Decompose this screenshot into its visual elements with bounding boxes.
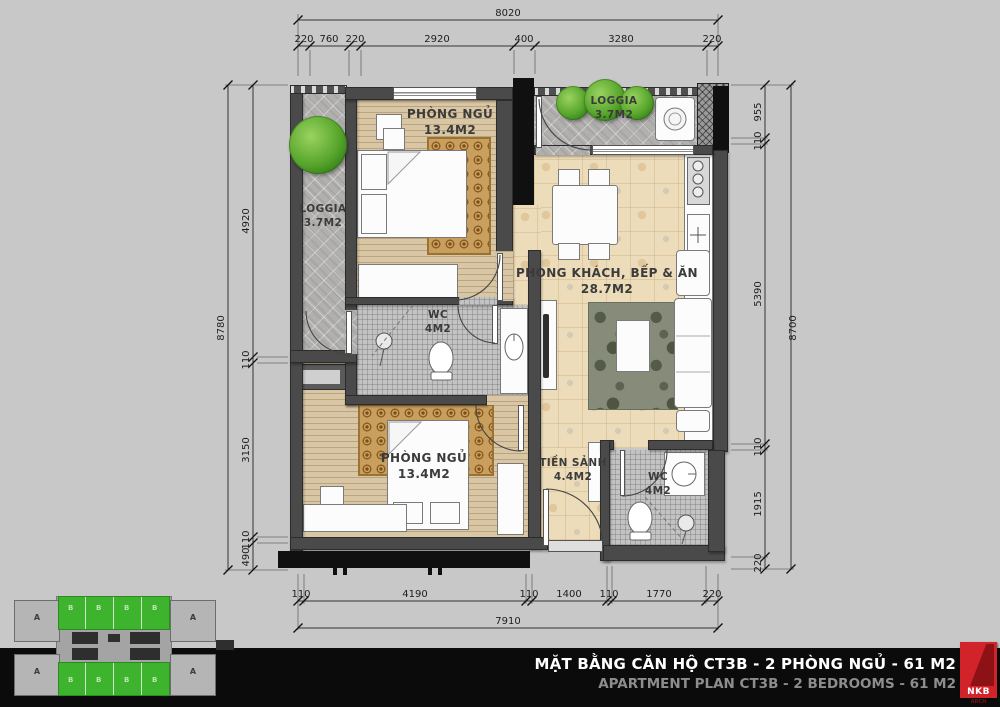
- plan-title-vietnamese: MẶT BẰNG CĂN HỘ CT3B - 2 PHÒNG NGỦ - 61 …: [535, 655, 956, 673]
- side-table: [676, 410, 710, 432]
- dim-text: 220: [753, 553, 764, 572]
- room-name: PHÒNG NGỦ: [381, 450, 467, 466]
- entrance-door-leaf: [543, 489, 549, 546]
- door-leaf: [346, 311, 352, 354]
- dim-text: 3150: [241, 437, 252, 462]
- unit-b-label: B: [124, 676, 129, 684]
- room-area: 28.7M2: [516, 281, 698, 297]
- room-area: 4M2: [425, 322, 451, 336]
- nkb-logo: NKB: [960, 642, 997, 698]
- key-plan-core: [130, 632, 160, 644]
- door-leaf: [620, 450, 625, 496]
- desk: [303, 504, 407, 532]
- dresser-top: [300, 370, 340, 384]
- unit-a-label: A: [171, 667, 215, 676]
- room-name: WC: [645, 470, 671, 484]
- pillow: [361, 194, 387, 234]
- door-leaf: [497, 253, 503, 301]
- dim-text: 1400: [556, 589, 581, 600]
- unit-b-label: B: [68, 604, 73, 612]
- dim-text: 220: [702, 589, 721, 600]
- dim-text: 110: [753, 437, 764, 456]
- wall: [708, 450, 725, 552]
- key-plan-highlighted-units: B B B B: [58, 662, 170, 696]
- wc1-vanity: [500, 308, 528, 394]
- room-label-bedroom2: PHÒNG NGỦ 13.4M2: [381, 450, 467, 482]
- room-name: TIỀN SẢNH: [539, 456, 607, 470]
- ledge-tick: [333, 568, 337, 575]
- dim-text: 1915: [753, 491, 764, 516]
- wall: [345, 395, 487, 405]
- key-plan-core: [72, 648, 98, 660]
- dining-chair: [588, 169, 610, 186]
- dim-text: 4920: [241, 208, 252, 233]
- room-name: LOGGIA: [300, 202, 347, 216]
- dim-text: 110: [291, 589, 310, 600]
- unit-b-label: B: [152, 676, 157, 684]
- dim-text: 220: [294, 34, 313, 45]
- unit-b-label: B: [124, 604, 129, 612]
- logo-subtext: ARCH: [960, 699, 997, 705]
- coffee-table: [616, 320, 650, 372]
- unit-b-label: B: [68, 676, 73, 684]
- ledge-tick: [428, 568, 432, 575]
- washing-machine-icon: [655, 97, 695, 141]
- stove-icon: [687, 157, 710, 205]
- wall: [603, 545, 725, 561]
- nightstand: [383, 128, 405, 150]
- dim-text: 2920: [424, 34, 449, 45]
- key-plan-core: [130, 648, 160, 660]
- plan-title-english: APARTMENT PLAN CT3B - 2 BEDROOMS - 61 M2: [598, 676, 956, 692]
- stool: [320, 486, 344, 506]
- unit-a-label: A: [171, 613, 215, 622]
- key-plan-unit-a: A: [170, 600, 216, 642]
- dining-table: [552, 185, 618, 245]
- wall: [648, 440, 713, 450]
- wall: [713, 150, 728, 452]
- key-plan: A A A A B B B B B B B B: [12, 594, 238, 704]
- room-area: 4.4M2: [539, 470, 607, 484]
- dining-chair: [558, 169, 580, 186]
- unit-a-label: A: [15, 613, 59, 622]
- door-leaf: [492, 305, 498, 344]
- room-name: WC: [425, 308, 451, 322]
- dim-text: 760: [319, 34, 338, 45]
- key-plan-unit-a: A: [170, 654, 216, 696]
- dim-text: 8020: [495, 8, 520, 19]
- pillow: [430, 502, 460, 524]
- key-plan-unit-a: A: [14, 654, 60, 696]
- room-area: 3.7M2: [300, 216, 347, 230]
- dining-chair: [558, 243, 580, 260]
- room-area: 4M2: [645, 484, 671, 498]
- dim-text: 110: [241, 350, 252, 369]
- ledge-tick: [438, 568, 442, 575]
- dim-text: 3280: [608, 34, 633, 45]
- door-opening: [536, 146, 590, 155]
- dim-text: 400: [514, 34, 533, 45]
- room-area: 13.4M2: [407, 122, 493, 138]
- ledge-tick: [343, 568, 347, 575]
- pillow: [361, 154, 387, 190]
- room-name: LOGGIA: [591, 94, 638, 108]
- key-plan-highlighted-units: B B B B: [58, 596, 170, 630]
- dim-text: 8780: [216, 315, 227, 340]
- desk: [358, 264, 458, 298]
- key-plan-core: [108, 634, 120, 642]
- dim-text: 220: [345, 34, 364, 45]
- room-label-wc1: WC 4M2: [425, 308, 451, 336]
- dim-text: 110: [519, 589, 538, 600]
- door-leaf: [536, 96, 542, 148]
- dim-text: 110: [599, 589, 618, 600]
- dim-text: 110: [241, 530, 252, 549]
- shaft-column: [513, 78, 534, 205]
- balcony-ledge: [278, 551, 530, 568]
- room-label-living: PHÒNG KHÁCH, BẾP & ĂN 28.7M2: [516, 265, 698, 297]
- door-opening: [487, 395, 528, 405]
- door-leaf: [518, 405, 524, 451]
- room-label-hall: TIỀN SẢNH 4.4M2: [539, 456, 607, 484]
- dim-text: 110: [753, 131, 764, 150]
- dim-text: 955: [753, 102, 764, 121]
- loggia1-railing: [290, 85, 347, 94]
- dim-text: 220: [702, 34, 721, 45]
- window: [592, 145, 694, 155]
- wall: [290, 537, 548, 550]
- room-name: PHÒNG KHÁCH, BẾP & ĂN: [516, 265, 698, 281]
- dim-text: 7910: [495, 616, 520, 627]
- dim-text: 490: [241, 547, 252, 566]
- logo-swoosh: [970, 644, 994, 686]
- logo-text: NKB: [960, 687, 997, 697]
- unit-b-label: B: [96, 604, 101, 612]
- door-opening: [459, 297, 497, 305]
- key-plan-bridge: [216, 640, 234, 650]
- room-label-bedroom1: PHÒNG NGỦ 13.4M2: [407, 106, 493, 138]
- room-area: 13.4M2: [381, 466, 467, 482]
- dim-text: 8700: [788, 315, 799, 340]
- structural-column: [713, 86, 729, 152]
- dim-text: 5390: [753, 281, 764, 306]
- wardrobe: [497, 463, 524, 535]
- unit-b-label: B: [96, 676, 101, 684]
- room-name: PHÒNG NGỦ: [407, 106, 493, 122]
- unit-a-label: A: [15, 667, 59, 676]
- room-label-loggia1: LOGGIA 3.7M2: [300, 202, 347, 230]
- key-plan-core: [72, 632, 98, 644]
- dining-chair: [588, 243, 610, 260]
- room-area: 3.7M2: [591, 108, 638, 122]
- dim-text: 1770: [646, 589, 671, 600]
- floor-plan-canvas: 8020 220 760 220 2920 400 3280 220 7910 …: [0, 0, 1000, 707]
- dim-text: 4190: [402, 589, 427, 600]
- unit-b-label: B: [152, 604, 157, 612]
- tree-icon: [289, 116, 347, 174]
- room-label-loggia2: LOGGIA 3.7M2: [591, 94, 638, 122]
- entrance-threshold: [548, 540, 603, 552]
- sofa: [674, 298, 712, 408]
- room-label-wc2: WC 4M2: [645, 470, 671, 498]
- key-plan-unit-a: A: [14, 600, 60, 642]
- window: [393, 87, 477, 100]
